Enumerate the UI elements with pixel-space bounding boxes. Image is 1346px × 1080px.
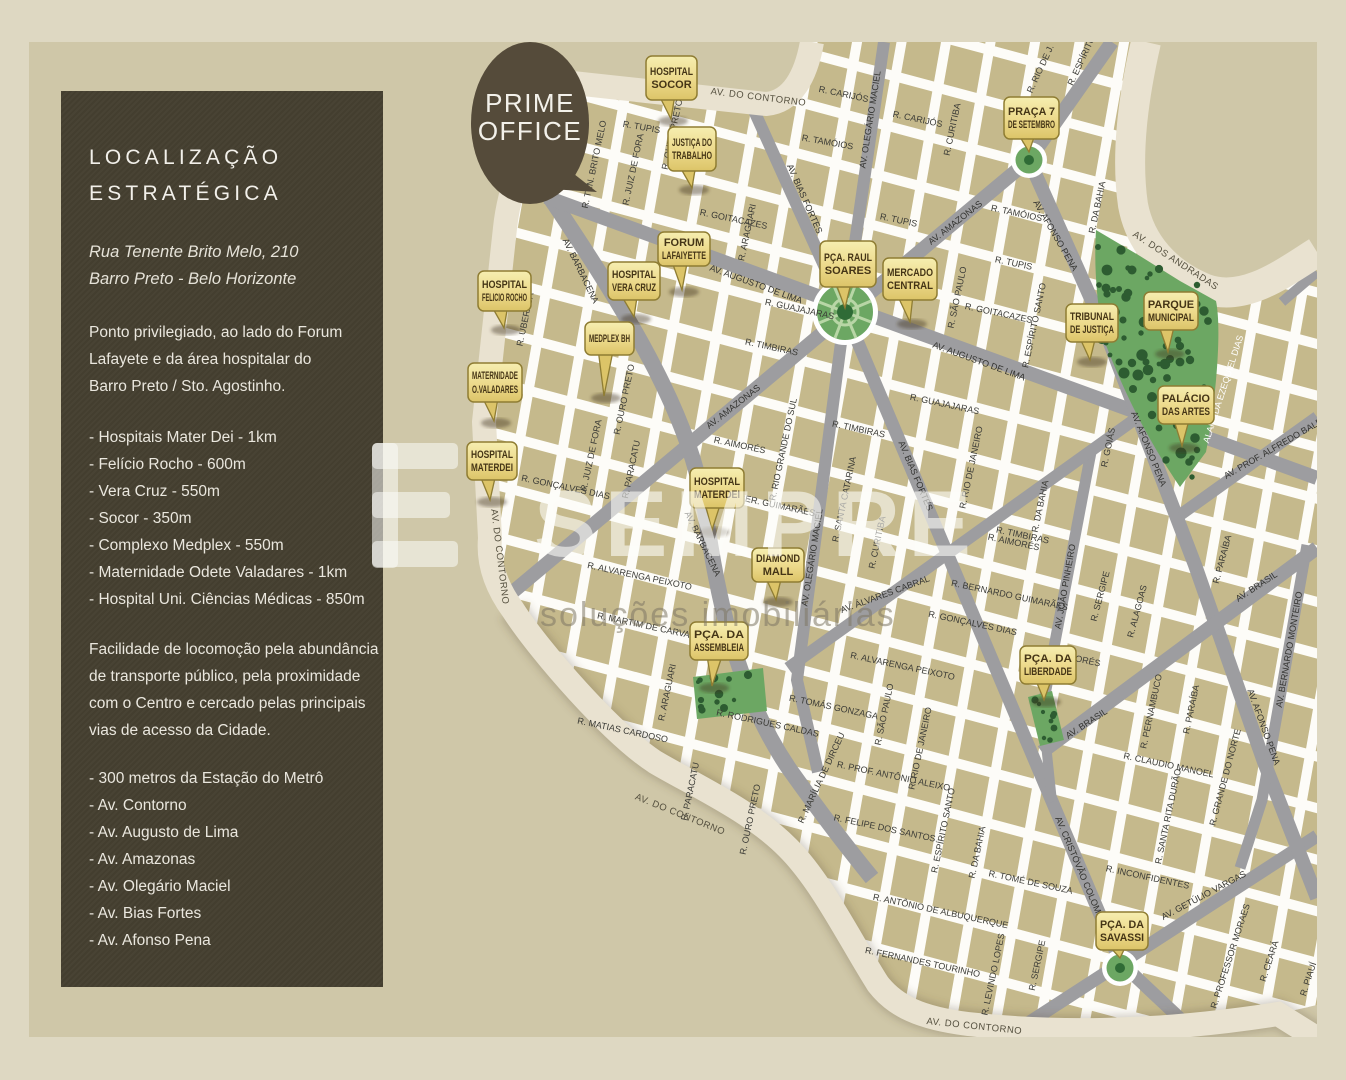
svg-text:PRIME: PRIME bbox=[485, 88, 575, 118]
svg-text:LIBERDADE: LIBERDADE bbox=[1024, 666, 1072, 678]
svg-text:JUSTIÇA DO: JUSTIÇA DO bbox=[672, 137, 712, 149]
svg-text:O.VALADARES: O.VALADARES bbox=[472, 384, 518, 396]
svg-text:PARQUE: PARQUE bbox=[1148, 299, 1194, 311]
svg-text:MEDPLEX BH: MEDPLEX BH bbox=[589, 333, 630, 345]
svg-text:DE SETEMBRO: DE SETEMBRO bbox=[1008, 119, 1055, 131]
svg-text:MUNICIPAL: MUNICIPAL bbox=[1148, 312, 1194, 324]
svg-text:DE JUSTIÇA: DE JUSTIÇA bbox=[1070, 324, 1114, 336]
svg-text:PÇA. RAUL: PÇA. RAUL bbox=[824, 252, 872, 264]
svg-text:PRAÇA 7: PRAÇA 7 bbox=[1008, 106, 1055, 118]
svg-text:ASSEMBLEIA: ASSEMBLEIA bbox=[694, 642, 744, 654]
svg-text:DAS ARTES: DAS ARTES bbox=[1162, 406, 1210, 418]
svg-text:SOCOR: SOCOR bbox=[651, 79, 691, 91]
svg-text:FELICIO ROCHO: FELICIO ROCHO bbox=[482, 292, 527, 304]
svg-text:PALÁCIO: PALÁCIO bbox=[1162, 392, 1210, 405]
svg-text:CENTRAL: CENTRAL bbox=[887, 280, 933, 292]
svg-text:HOSPITAL: HOSPITAL bbox=[471, 449, 513, 461]
svg-text:TRIBUNAL: TRIBUNAL bbox=[1070, 311, 1114, 323]
svg-text:MERCADO: MERCADO bbox=[887, 267, 933, 279]
svg-text:TRABALHO: TRABALHO bbox=[672, 150, 712, 162]
svg-text:VERA CRUZ: VERA CRUZ bbox=[612, 282, 656, 294]
svg-text:MATERDEI: MATERDEI bbox=[694, 489, 740, 501]
svg-text:MATERDEI: MATERDEI bbox=[471, 462, 513, 474]
svg-text:PÇA. DA: PÇA. DA bbox=[1100, 919, 1144, 931]
svg-text:SAVASSI: SAVASSI bbox=[1100, 932, 1144, 944]
svg-text:HOSPITAL: HOSPITAL bbox=[482, 279, 527, 291]
svg-text:HOSPITAL: HOSPITAL bbox=[612, 269, 656, 281]
svg-text:MATERNIDADE: MATERNIDADE bbox=[472, 370, 518, 382]
svg-text:MALL: MALL bbox=[763, 566, 794, 578]
svg-text:LAFAIYETTE: LAFAIYETTE bbox=[662, 250, 706, 262]
svg-text:HOSPITAL: HOSPITAL bbox=[650, 66, 693, 78]
svg-text:PÇA. DA: PÇA. DA bbox=[1024, 653, 1072, 665]
svg-text:DIAMOND: DIAMOND bbox=[756, 553, 800, 565]
svg-text:SOARES: SOARES bbox=[825, 265, 871, 277]
svg-text:HOSPITAL: HOSPITAL bbox=[694, 476, 740, 488]
svg-text:FORUM: FORUM bbox=[664, 237, 704, 249]
svg-text:OFFICE: OFFICE bbox=[478, 116, 582, 146]
svg-text:PÇA. DA: PÇA. DA bbox=[694, 629, 744, 641]
